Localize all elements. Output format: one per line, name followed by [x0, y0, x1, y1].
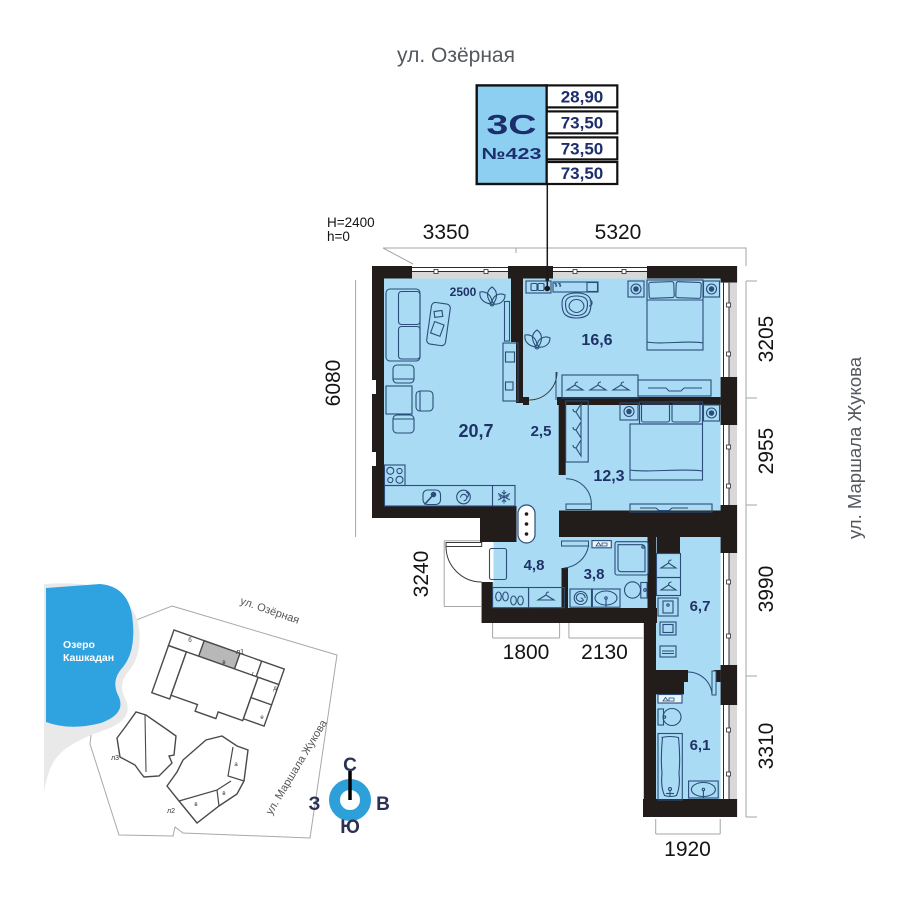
svg-text:в: в: [194, 802, 197, 808]
svg-text:Озеро: Озеро: [63, 639, 95, 651]
svg-text:л3: л3: [111, 755, 119, 762]
svg-text:З: З: [309, 794, 321, 815]
svg-text:Кашкадан: Кашкадан: [63, 652, 114, 664]
svg-text:3С: 3С: [487, 109, 537, 140]
svg-text:3205: 3205: [755, 316, 778, 363]
svg-text:73,50: 73,50: [561, 114, 604, 133]
svg-text:3310: 3310: [755, 723, 778, 770]
svg-text:Ю: Ю: [340, 817, 360, 838]
svg-text:В: В: [376, 794, 390, 815]
svg-text:ул. Маршала Жукова: ул. Маршала Жукова: [844, 356, 865, 539]
svg-text:С: С: [343, 755, 357, 776]
svg-text:2130: 2130: [581, 641, 628, 664]
svg-text:h=0: h=0: [327, 229, 350, 244]
svg-text:1800: 1800: [503, 641, 550, 664]
svg-text:6,7: 6,7: [690, 598, 711, 615]
svg-text:3990: 3990: [755, 566, 778, 613]
svg-text:3350: 3350: [423, 221, 470, 244]
svg-text:6080: 6080: [322, 360, 345, 407]
svg-text:б: б: [188, 638, 192, 644]
svg-text:ул. Озёрная: ул. Озёрная: [397, 44, 515, 67]
svg-text:3240: 3240: [410, 551, 433, 598]
svg-text:28,90: 28,90: [561, 88, 604, 107]
svg-text:6,1: 6,1: [690, 737, 711, 754]
svg-text:в: в: [222, 660, 225, 666]
svg-text:20,7: 20,7: [458, 421, 493, 441]
svg-text:2,5: 2,5: [531, 423, 552, 440]
svg-text:12,3: 12,3: [593, 468, 624, 485]
svg-text:л1: л1: [236, 649, 244, 656]
svg-text:16,6: 16,6: [581, 332, 612, 349]
svg-text:2955: 2955: [755, 428, 778, 475]
svg-text:73,50: 73,50: [561, 164, 604, 183]
svg-text:73,50: 73,50: [561, 139, 604, 158]
svg-text:5320: 5320: [595, 221, 642, 244]
svg-text:л2: л2: [167, 808, 175, 815]
svg-text:д: д: [273, 686, 277, 692]
svg-text:4,8: 4,8: [524, 557, 545, 574]
svg-text:3,8: 3,8: [584, 566, 605, 583]
svg-text:в: в: [222, 791, 225, 797]
svg-text:1920: 1920: [664, 838, 711, 861]
svg-text:№423: №423: [482, 146, 542, 163]
svg-text:H=2400: H=2400: [327, 215, 375, 230]
svg-text:2500: 2500: [450, 285, 477, 299]
